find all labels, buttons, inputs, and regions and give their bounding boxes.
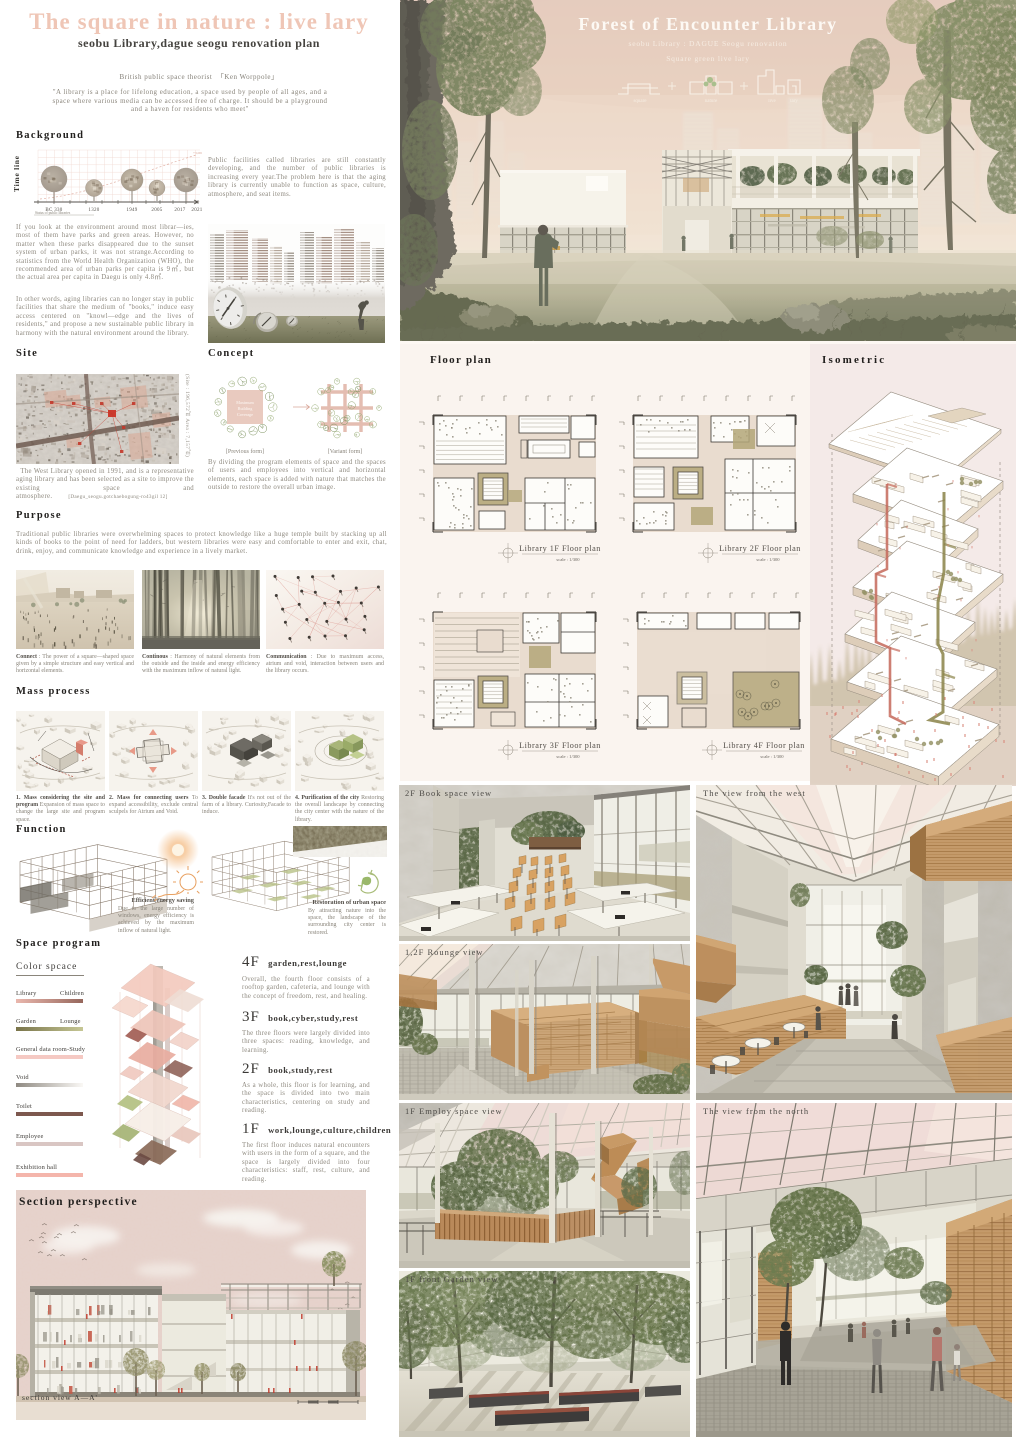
svg-text:scale : 1/300: scale : 1/300 <box>556 754 580 759</box>
svg-text:scale : 1/300: scale : 1/300 <box>756 557 780 562</box>
svg-text:Library 4F Floor plan: Library 4F Floor plan <box>723 741 805 750</box>
svg-text:2005: 2005 <box>151 208 162 213</box>
svg-text:General data room-Study: General data room-Study <box>16 1046 86 1053</box>
svg-text:2021: 2021 <box>191 208 202 213</box>
svg-text:2017: 2017 <box>174 208 185 213</box>
svg-text:Toilet: Toilet <box>16 1103 32 1110</box>
svg-text:Lounge: Lounge <box>60 1018 81 1025</box>
svg-text:Children: Children <box>60 990 85 997</box>
svg-text:1949: 1949 <box>126 208 137 213</box>
svg-text:scale : 1/300: scale : 1/300 <box>556 557 580 562</box>
svg-text:Coverage: Coverage <box>237 412 253 417</box>
svg-text:Exhibition hall: Exhibition hall <box>16 1164 57 1171</box>
svg-text:Library 2F Floor plan: Library 2F Floor plan <box>719 544 801 553</box>
svg-text:Void: Void <box>16 1074 29 1081</box>
svg-text:Library 1F Floor plan: Library 1F Floor plan <box>519 544 601 553</box>
svg-text:Building: Building <box>238 406 254 411</box>
svg-text:1320: 1320 <box>88 208 99 213</box>
svg-text:Employee: Employee <box>16 1133 44 1140</box>
svg-text:Garden: Garden <box>16 1018 37 1025</box>
svg-text:Maximum: Maximum <box>236 400 254 405</box>
svg-text:Time line: Time line <box>12 155 21 192</box>
svg-text:Status of public libraries: Status of public libraries <box>35 211 71 215</box>
svg-text:Library 3F Floor plan: Library 3F Floor plan <box>519 741 601 750</box>
svg-text:Library: Library <box>16 990 37 997</box>
svg-text:scale : 1/300: scale : 1/300 <box>760 754 784 759</box>
